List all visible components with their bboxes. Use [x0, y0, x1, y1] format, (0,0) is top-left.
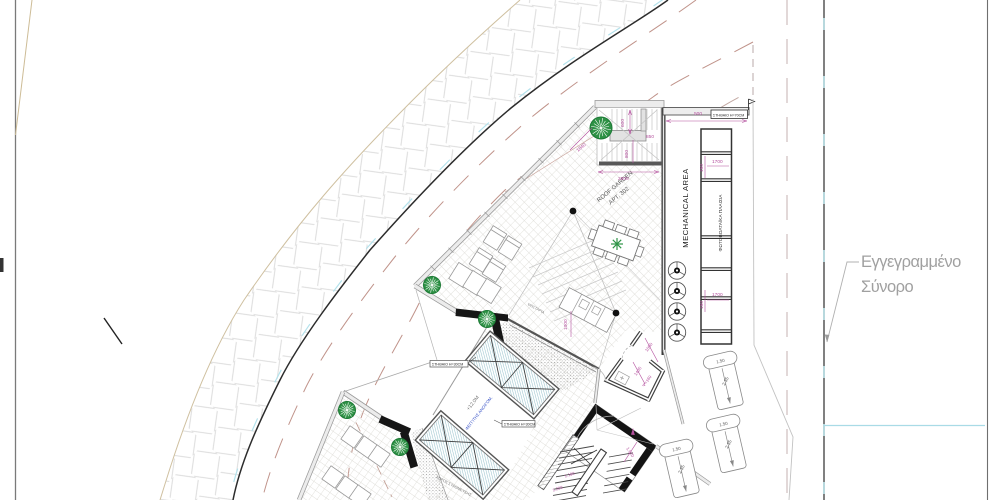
svg-text:850: 850	[646, 134, 654, 140]
svg-text:2600: 2600	[618, 176, 629, 182]
svg-text:ΦΩΤΟΒΟΛΤΑΪΚΑ ΠΛΑΙΣΙΑ: ΦΩΤΟΒΟΛΤΑΪΚΑ ΠΛΑΙΣΙΑ	[717, 194, 724, 252]
svg-text:500: 500	[694, 111, 702, 117]
svg-text:1700: 1700	[712, 292, 723, 298]
svg-text:1700: 1700	[712, 159, 723, 165]
svg-text:150: 150	[699, 164, 705, 172]
svg-text:Σύνορο: Σύνορο	[861, 278, 914, 296]
svg-text:600: 600	[620, 119, 626, 127]
svg-text:800: 800	[624, 150, 630, 158]
svg-text:Εγγεγραμμένο: Εγγεγραμμένο	[861, 253, 961, 271]
svg-text:MECHANICAL AREA: MECHANICAL AREA	[681, 168, 690, 248]
svg-text:ΣΤΗΘΑΙΟ Η=30CM: ΣΤΗΘΑΙΟ Η=30CM	[504, 423, 535, 427]
svg-text:ΣΤΗΘΑΙΟ Η=30CM: ΣΤΗΘΑΙΟ Η=30CM	[432, 363, 463, 367]
svg-text:150: 150	[699, 301, 705, 309]
svg-text:ΣΤΗΘΑΙΟ Η=70CM: ΣΤΗΘΑΙΟ Η=70CM	[713, 113, 744, 117]
svg-text:1000: 1000	[563, 319, 569, 330]
